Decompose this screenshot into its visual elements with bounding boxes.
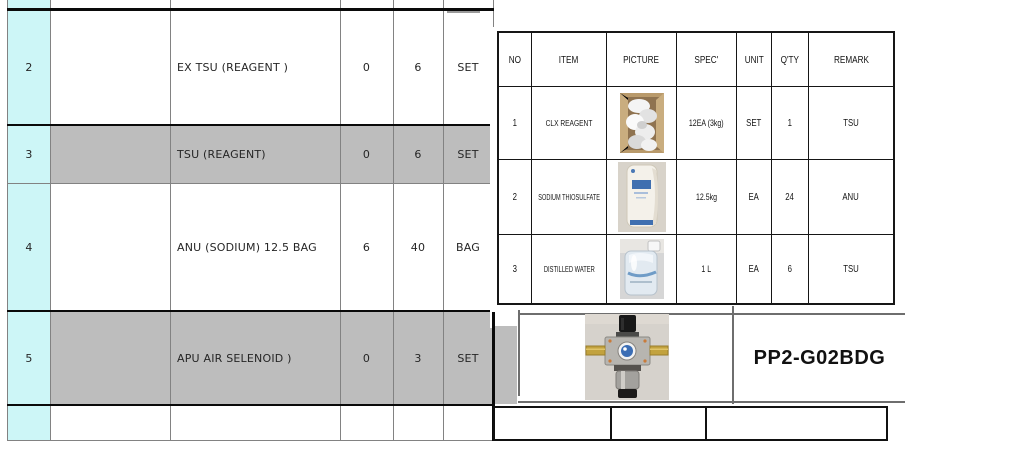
spec-qty-cell: 6: [772, 235, 809, 303]
unit-cell[interactable]: SET: [443, 126, 493, 183]
spec-header-qty: Q'TY: [772, 33, 809, 87]
spec-item-cell: CLX REAGENT: [532, 87, 607, 160]
qty-col1-cell[interactable]: 6: [340, 183, 393, 312]
box-of-reagent-bags-icon: [619, 92, 665, 154]
part-box-left-border: [518, 310, 520, 396]
qty-col2-cell[interactable]: 40: [393, 183, 443, 312]
bottom-box-divider: [610, 408, 612, 439]
spec-header-remark: REMARK: [809, 33, 893, 87]
part-box-bottom-border: [518, 401, 905, 403]
white-chemical-bag-icon: [618, 162, 666, 232]
spec-remark-cell: TSU: [809, 235, 893, 303]
grid-line: [7, 440, 494, 441]
spec-remark-cell: ANU: [809, 160, 893, 235]
spec-spec-cell: 12EA (3kg): [677, 87, 737, 160]
row-number-cell[interactable]: 3: [8, 126, 50, 183]
spec-header-spec: SPEC': [677, 33, 737, 87]
item-description-cell[interactable]: APU AIR SELENOID ): [170, 312, 347, 405]
spec-header-item: ITEM: [532, 33, 607, 87]
bottom-box-divider: [705, 408, 707, 439]
spec-header-unit: UNIT: [737, 33, 772, 87]
shaded-cell-fragment: [494, 326, 517, 404]
spec-item-cell: SODIUM THIOSULFATE: [532, 160, 607, 235]
spec-unit-cell: EA: [737, 235, 772, 303]
air-filter-regulator-icon: [585, 314, 669, 400]
spec-header-no: NO: [499, 33, 532, 87]
unit-cell[interactable]: SET: [443, 312, 493, 405]
qty-col1-cell[interactable]: 0: [340, 312, 393, 405]
item-description-cell[interactable]: ANU (SODIUM) 12.5 BAG: [170, 183, 347, 312]
row-number-cell[interactable]: 2: [8, 8, 50, 126]
water-bottle-photo: [607, 235, 677, 303]
item-description-cell[interactable]: EX TSU (REAGENT ): [170, 8, 347, 126]
spec-unit-cell: EA: [737, 160, 772, 235]
unit-cell[interactable]: BAG: [443, 183, 493, 312]
spec-item-cell: DISTILLED WATER: [532, 235, 607, 303]
spreadsheet-canvas: 2 EX TSU (REAGENT ) 0 6 SET 3 TSU (REAGE…: [0, 0, 1024, 452]
item-description-cell[interactable]: TSU (REAGENT): [170, 126, 347, 183]
spec-table: NO ITEM PICTURE SPEC' UNIT Q'TY REMARK 1…: [497, 31, 895, 305]
part-number-label: PP2-G02BDG: [734, 315, 905, 401]
qty-col2-cell[interactable]: 6: [393, 8, 443, 126]
chemical-bag-photo: [607, 160, 677, 235]
bottom-row-boxes[interactable]: [493, 406, 888, 441]
spec-no-cell: 1: [499, 87, 532, 160]
spec-spec-cell: 1 L: [677, 235, 737, 303]
reagent-box-photo: [607, 87, 677, 160]
row-number-cell[interactable]: 4: [8, 183, 50, 312]
spec-remark-cell: TSU: [809, 87, 893, 160]
spec-no-cell: 2: [499, 160, 532, 235]
spec-qty-cell: 1: [772, 87, 809, 160]
qty-col1-cell[interactable]: 0: [340, 126, 393, 183]
spec-qty-cell: 24: [772, 160, 809, 235]
row-number-cell[interactable]: 5: [8, 312, 50, 405]
unit-cell[interactable]: SET: [443, 8, 493, 126]
spec-no-cell: 3: [499, 235, 532, 303]
spec-spec-cell: 12.5kg: [677, 160, 737, 235]
grid-line: [50, 0, 51, 441]
qty-col2-cell[interactable]: 6: [393, 126, 443, 183]
spec-header-picture: PICTURE: [607, 33, 677, 87]
air-filter-regulator-photo: [585, 314, 669, 404]
spec-unit-cell: SET: [737, 87, 772, 160]
qty-col1-cell[interactable]: 0: [340, 8, 393, 126]
qty-col2-cell[interactable]: 3: [393, 312, 443, 405]
plastic-water-bottle-icon: [620, 239, 664, 299]
